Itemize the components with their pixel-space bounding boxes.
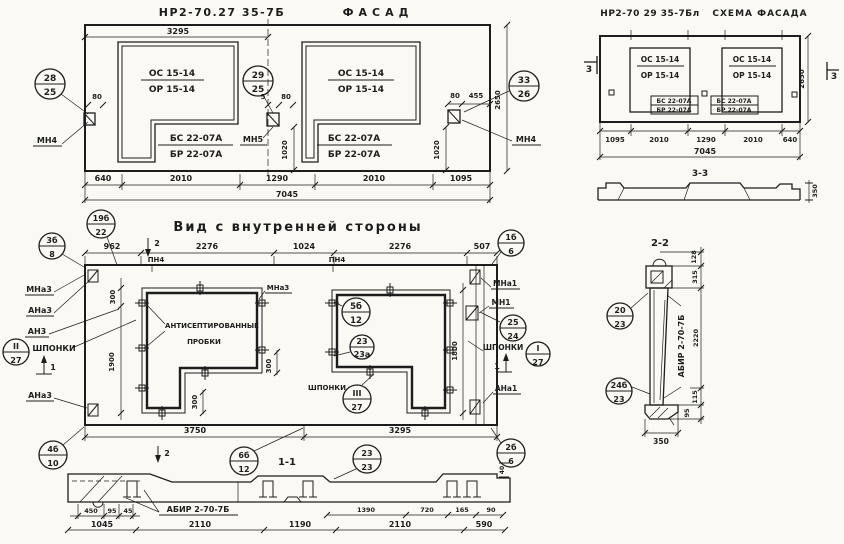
dim-label: 507 [474,242,491,251]
window-mark-br: БР 22-07А [170,150,222,160]
callout-5b-12: 5б 12 [334,298,370,326]
callout-top: 24б [611,380,628,390]
dim-label: 1045 [91,520,114,529]
dim-label: 40 [499,466,506,474]
dim-label: 95 [107,507,117,515]
window-mark-os: ОС 15-14 [641,55,679,64]
drawing-sheet: НР2-70.27 35-7Б ФАСАД 3295 ОС 15-14 ОР 1… [0,0,844,544]
dim-label: 640 [95,174,112,183]
plugs-label-1: АНТИСЕПТИРОВАННЫЕ [165,322,259,330]
dim-label: 1290 [266,174,289,183]
arrowhead [155,455,161,463]
dim-label: 450 [84,507,98,515]
right-annotations: МНа1 МН1 25 24 ШПОНКИ I 27 [468,278,550,403]
anchor-dot [609,90,614,95]
leader-line [54,398,87,408]
facade-view: НР2-70.27 35-7Б ФАСАД 3295 ОС 15-14 ОР 1… [33,6,541,203]
dim-label: 2110 [189,520,212,529]
top-flange [646,266,672,288]
window-mark-or: ОР 15-14 [733,71,771,80]
lift-hook [653,259,666,266]
arrowhead [41,355,47,363]
window-mark-os: ОС 15-14 [733,55,771,64]
section-mark-1: 1 [494,362,500,371]
callout-bottom: 26 [518,90,531,100]
dim-label: 590 [476,520,493,529]
leader-line [54,274,86,292]
dim-label: 1390 [357,506,376,514]
dim-label: 2010 [363,174,386,183]
callout-bottom: 23 [614,320,625,329]
leader-line [54,281,89,313]
dim-label: 80 [450,92,460,100]
callout-top: III [353,389,362,398]
dim-label: 1095 [450,174,473,183]
hook-hatch [88,404,98,416]
facade-window-2: ОС 15-14 ОР 15-14 БС 22-07А БР 22-07А [302,42,420,162]
hook-hatch [470,270,480,284]
element-mark-label: АБИР 2-70-7Б [677,315,686,378]
anchor-label-mn5: МН5 [243,135,264,144]
callout-top: 20 [614,306,626,315]
anchor-label-an3: АН3 [28,327,46,336]
panel-body [650,288,668,405]
dim-label: 1290 [696,136,716,144]
dim-label: 3295 [167,27,190,36]
dim-label: 2110 [389,520,412,529]
callout-top: II [13,342,19,351]
section-mark-2: 2 [154,239,160,248]
shponki-label: ШПОНКИ [483,343,524,352]
schema-view: НР2-70 29 35-7Бл СХЕМА ФАСАДА ОС 15-14 О… [584,9,839,203]
plug-marks [135,281,269,420]
anchor-label-ana3: АНа3 [28,306,52,315]
leader-line [631,293,648,308]
hatch-lines [650,407,674,425]
schema-title: СХЕМА ФАСАДА [712,9,807,19]
callout-top: 19б [93,213,110,223]
section-title-1-1: 1-1 [278,457,296,468]
shponki-label: ШПОНКИ [32,344,75,353]
window-mark-br: БР 22-07А [657,107,692,114]
dim-label: 80 [281,93,291,101]
leader-line [334,469,356,479]
bottom-notch [284,497,301,502]
callout-bottom: 24 [507,332,519,341]
leader-line [254,428,303,451]
dim-label: 95 [683,408,691,418]
section-1-1: 40 450 95 45 АБИР 2-70-7Б 1390 720 165 9… [65,463,510,533]
callout-I-27: I 27 [526,342,550,367]
leader-line [72,320,136,348]
dim-label: 165 [455,506,469,514]
section-title-2-2: 2-2 [651,238,669,249]
callout-top: 3б [46,235,58,245]
dim-label: 45 [123,507,133,515]
rebar-u [259,481,277,497]
callout-top: 29 [252,71,265,81]
dim-label: 3750 [184,426,207,435]
callout-top: 28 [44,74,57,84]
leader-line [462,120,512,141]
plugs-label-2: ПРОБКИ [187,338,221,346]
callout-2b-6: 2б 6 [491,428,525,467]
window-mark-bs: БС 22-07А [717,98,752,105]
callout-bottom: 27 [10,356,21,365]
facade-window-1: ОС 15-14 ОР 15-14 БС 22-07А БР 22-07А [118,42,238,162]
anchor-dot [702,91,707,96]
callout-top: 25 [507,318,519,327]
callout-bottom: 12 [238,465,249,474]
dim-label: 455 [469,92,484,100]
dim-label: 1024 [293,242,316,251]
window-mark-bs: БС 22-07А [170,134,222,144]
callout-bottom: 25 [44,88,57,98]
dim-label: 80 [92,93,102,101]
tick-marks [85,102,106,108]
anchor-label-ana3: АНа3 [28,391,52,400]
callout-20-23: 20 23 [607,293,648,329]
leader-line [481,278,491,287]
callout-top: 6б [238,450,250,460]
dim-label: 300 [191,395,199,410]
callout-top: 23 [356,337,367,346]
window-mark-br: БР 22-07А [717,107,752,114]
leader-line [263,127,273,138]
window-mark-os: ОС 15-14 [338,69,384,79]
dim-label: 1095 [605,136,625,144]
dim-label: 1020 [281,140,289,160]
callout-bottom: 23 [361,463,372,472]
dim-label: 3295 [389,426,412,435]
section-title-3-3: 3-3 [692,169,708,179]
callout-bottom: 23а [354,350,371,359]
anchor-label-mna3: МНа3 [26,285,52,294]
dim-label: 962 [104,242,121,251]
anchor-label-mn4: МН4 [516,135,537,144]
dim-label: 90 [486,506,496,514]
dim-label: 1800 [451,341,459,361]
dim-label: 2220 [692,328,700,347]
drawing-canvas: НР2-70.27 35-7Б ФАСАД 3295 ОС 15-14 ОР 1… [0,0,844,544]
window-mark-bs: БС 22-07А [657,98,692,105]
facade-code-title: НР2-70.27 35-7Б [159,6,286,19]
dim-label: 2010 [649,136,669,144]
dim-label: 2650 [798,69,806,89]
callout-29-25: 29 25 [243,66,273,113]
window-outline [302,42,420,162]
section-mark-3: 3 [831,72,837,82]
facade-title: ФАСАД [343,6,414,19]
window-mark-or: ОР 15-14 [641,71,679,80]
rebar-u [463,481,481,497]
leader-line [146,331,165,347]
dim-label: 2276 [196,242,219,251]
dim-label: 640 [783,136,798,144]
dim-label: 115 [691,390,699,404]
window-mark-or: ОР 15-14 [338,85,384,95]
leader-line [146,304,165,324]
callout-II-27: II 27 [3,339,29,365]
rebar-u [123,481,141,497]
dim-label: 2650 [494,90,502,110]
dim-label: 315 [691,270,699,284]
leader-line [62,254,84,267]
window-mark-bs: БС 22-07А [328,134,380,144]
callout-top: 33 [518,76,531,86]
dim-label: 720 [420,506,434,514]
dim-label: 300 [109,290,117,305]
section-mark-1: 1 [50,363,56,372]
dim-label: 300 [265,359,273,374]
section-mark-3: 3 [586,65,592,75]
callout-top: I [537,344,540,353]
callout-25-24: 25 24 [480,312,526,341]
window-reveal [147,293,257,408]
dim-label: 1190 [289,520,312,529]
hook-hatch [88,270,98,282]
callout-top: 5б [350,301,362,312]
callout-bottom: 25 [252,85,265,95]
leader-line [362,374,374,385]
window-outline [142,288,262,413]
window-mark-br: БР 22-07А [328,150,380,160]
dim-label: 2010 [170,174,193,183]
callout-bottom: 8 [49,250,55,259]
schema-code-title: НР2-70 29 35-7Бл [600,9,699,19]
callout-top: 1б [505,232,517,242]
callout-bottom: 10 [47,459,59,468]
section-3-3-profile [598,183,800,200]
hatch-lines [80,476,122,502]
dim-label: 128 [690,250,698,264]
arrowhead [503,353,509,361]
rebar-u [443,481,461,497]
callout-4b-10: 4б 10 [39,427,84,469]
anchor-label-mn4: МН4 [37,136,58,145]
section-mark-2: 2 [164,449,170,458]
dim-label: 2010 [743,136,763,144]
section-2-2: 2-2 АБИР 2-70-7Б 128 315 2220 115 95 350… [606,238,704,446]
section-profile [68,474,510,502]
leader-line [483,392,493,403]
anchor-hatch [267,113,279,126]
window-mark-or: ОР 15-14 [149,85,195,95]
anchor-label-mna3: МНа3 [267,284,290,292]
callout-19b-22: 19б 22 [87,210,117,265]
dim-label: 1020 [433,140,441,160]
anchor-dot [792,92,797,97]
leader-line [632,387,650,394]
shponki-label: ШПОНКИ [308,384,346,392]
dim-label: 350 [653,437,669,446]
leader-line [664,387,681,398]
callout-bottom: 27 [532,358,543,367]
hook-hatch [470,400,480,414]
leader-line [468,341,483,351]
schema-window-1: ОС 15-14 ОР 15-14 БС 22-07А БР 22-07А [630,48,698,114]
inner-view-title: Вид с внутренней стороны [173,220,422,235]
callout-top: 23 [361,449,372,458]
element-mark-label: АБИР 2-70-7Б [167,505,230,514]
rebar-u [299,481,317,497]
pn4-label: ПН4 [329,256,346,264]
window-outline [118,42,238,162]
callout-bottom: 6 [508,247,514,256]
callout-III-27: III 27 [343,374,374,413]
window-mark-os: ОС 15-14 [149,69,195,79]
inner-view: Вид с внутренней стороны [3,210,550,479]
inner-window-left: АНТИСЕПТИРОВАННЫЕ ПРОБКИ [135,281,269,420]
dim-label-total: 7045 [276,190,299,199]
callout-top: 4б [47,444,59,454]
anchor-label-mna1: МНа1 [493,279,517,288]
dim-label: 1900 [108,352,116,372]
anchor-hatch [448,110,460,123]
extension-lines [85,425,497,441]
callout-3b-8: 3б 8 [39,233,84,267]
anchor-label-mn1: МН1 [492,298,511,307]
leader-line [61,94,88,114]
rebar-symbols [123,481,481,497]
callout-28-25: 28 25 [35,69,88,114]
anchor-label-ana1: АНа1 [495,384,517,393]
callout-top: 2б [505,442,517,452]
callout-24b-23: 24б 23 [606,378,650,404]
pn4-label: ПН4 [148,256,165,264]
callout-23-23a: 23 23а [334,335,374,359]
hatch-lines [651,271,672,288]
callout-bottom: 27 [351,403,362,412]
callout-bottom: 23 [613,395,624,404]
callout-23-23: 23 23 [334,445,381,479]
callout-bottom: 12 [350,316,362,326]
schema-window-2: ОС 15-14 ОР 15-14 БС 22-07А БР 22-07А [711,48,782,114]
leader-line [63,427,84,445]
profile-detail [618,183,750,200]
dim-label: 350 [811,184,819,198]
leader-line [667,295,681,306]
leader-line [491,428,501,443]
callout-bottom: 6 [508,457,514,466]
dim-label: 2276 [389,242,412,251]
callout-bottom: 22 [95,228,106,237]
dim-label-total: 7045 [694,147,717,156]
